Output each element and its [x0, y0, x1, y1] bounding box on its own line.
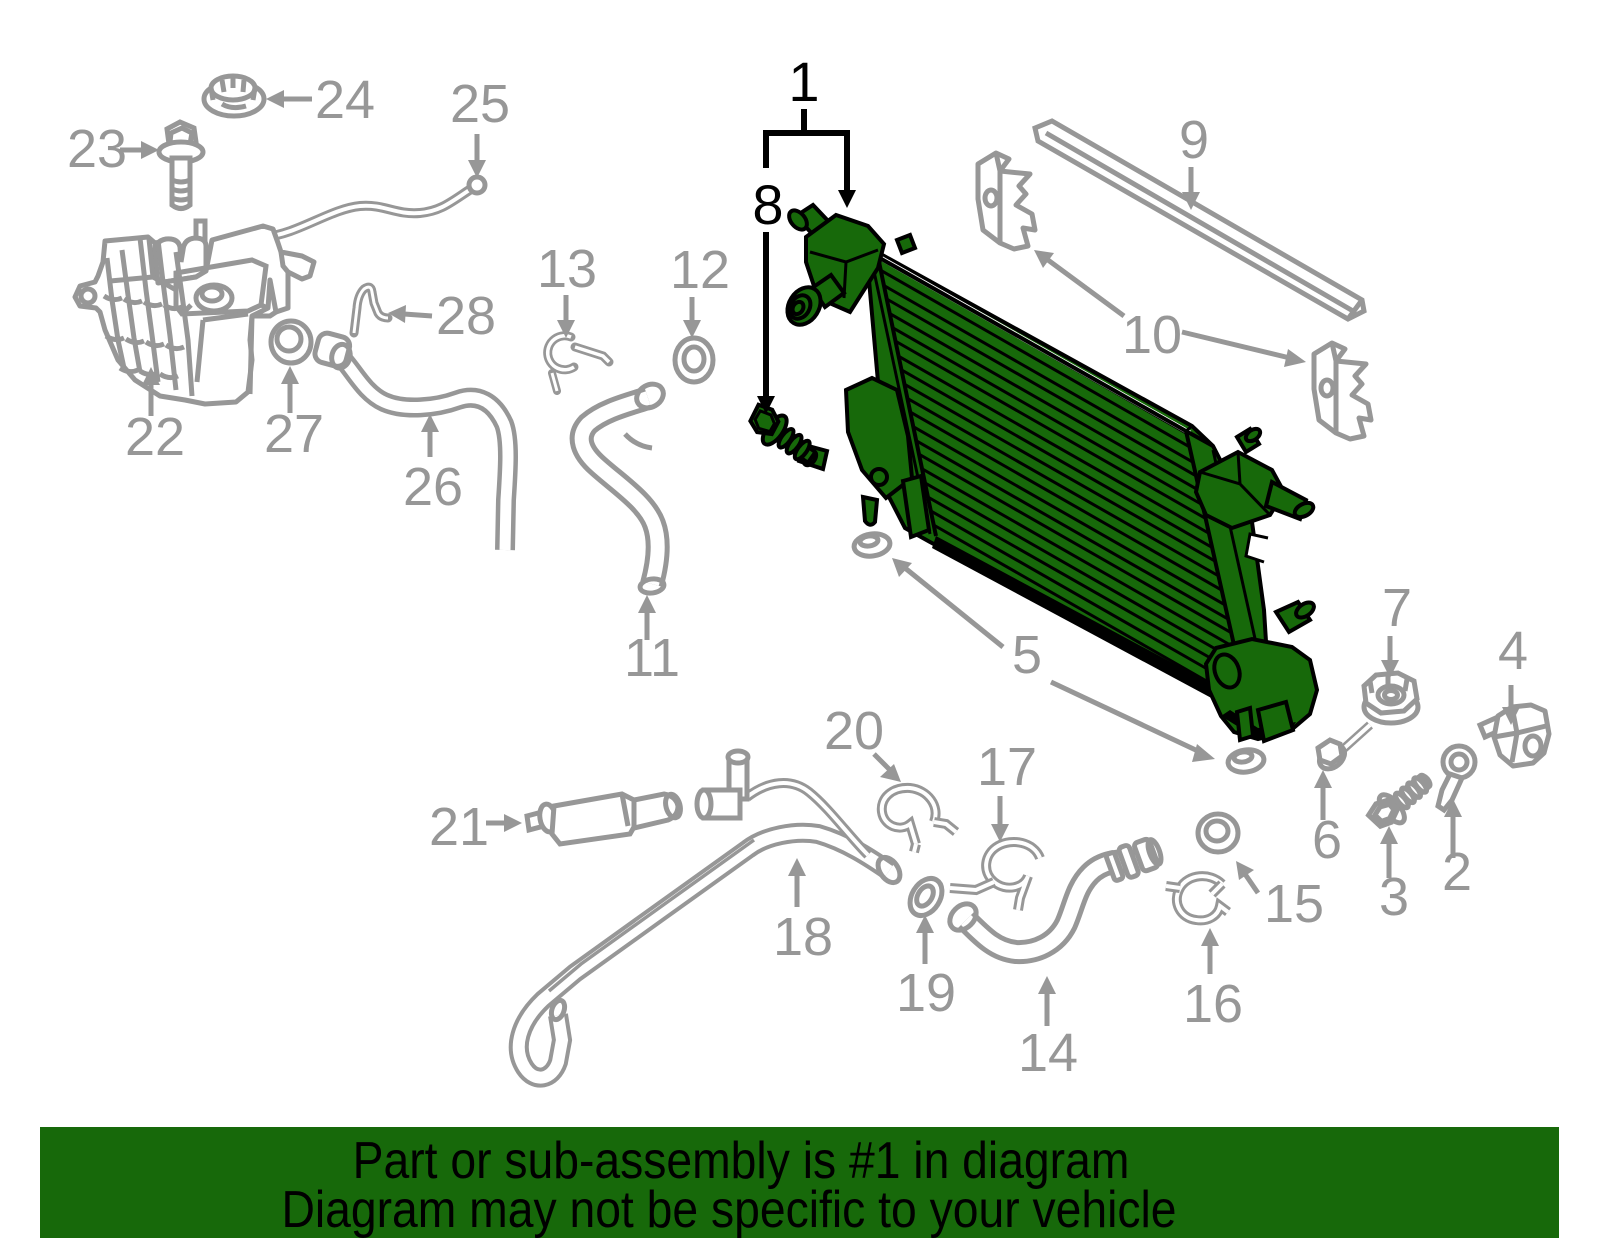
- svg-text:6: 6: [1312, 810, 1342, 870]
- svg-text:17: 17: [977, 737, 1037, 797]
- svg-text:Diagram may not be specific to: Diagram may not be specific to your vehi…: [281, 1181, 1176, 1239]
- svg-text:2: 2: [1442, 842, 1472, 902]
- svg-text:15: 15: [1264, 874, 1324, 934]
- svg-text:24: 24: [315, 70, 375, 130]
- svg-text:22: 22: [125, 407, 185, 467]
- svg-text:14: 14: [1018, 1023, 1078, 1083]
- svg-text:4: 4: [1498, 621, 1528, 681]
- svg-text:16: 16: [1183, 974, 1243, 1034]
- svg-text:28: 28: [436, 286, 496, 346]
- svg-text:5: 5: [1012, 625, 1042, 685]
- svg-text:3: 3: [1379, 867, 1409, 927]
- svg-text:11: 11: [624, 628, 680, 688]
- svg-text:13: 13: [537, 239, 597, 299]
- svg-text:21: 21: [429, 797, 489, 857]
- svg-text:10: 10: [1122, 305, 1182, 365]
- svg-text:27: 27: [264, 404, 324, 464]
- svg-text:26: 26: [403, 457, 463, 517]
- svg-text:25: 25: [450, 74, 510, 134]
- svg-text:23: 23: [67, 119, 127, 179]
- svg-text:8: 8: [752, 173, 783, 236]
- svg-text:18: 18: [773, 907, 833, 967]
- svg-text:20: 20: [824, 701, 884, 761]
- svg-text:9: 9: [1179, 110, 1209, 170]
- svg-text:12: 12: [670, 240, 730, 300]
- svg-text:19: 19: [896, 963, 956, 1023]
- svg-text:1: 1: [788, 50, 819, 113]
- svg-text:7: 7: [1382, 578, 1412, 638]
